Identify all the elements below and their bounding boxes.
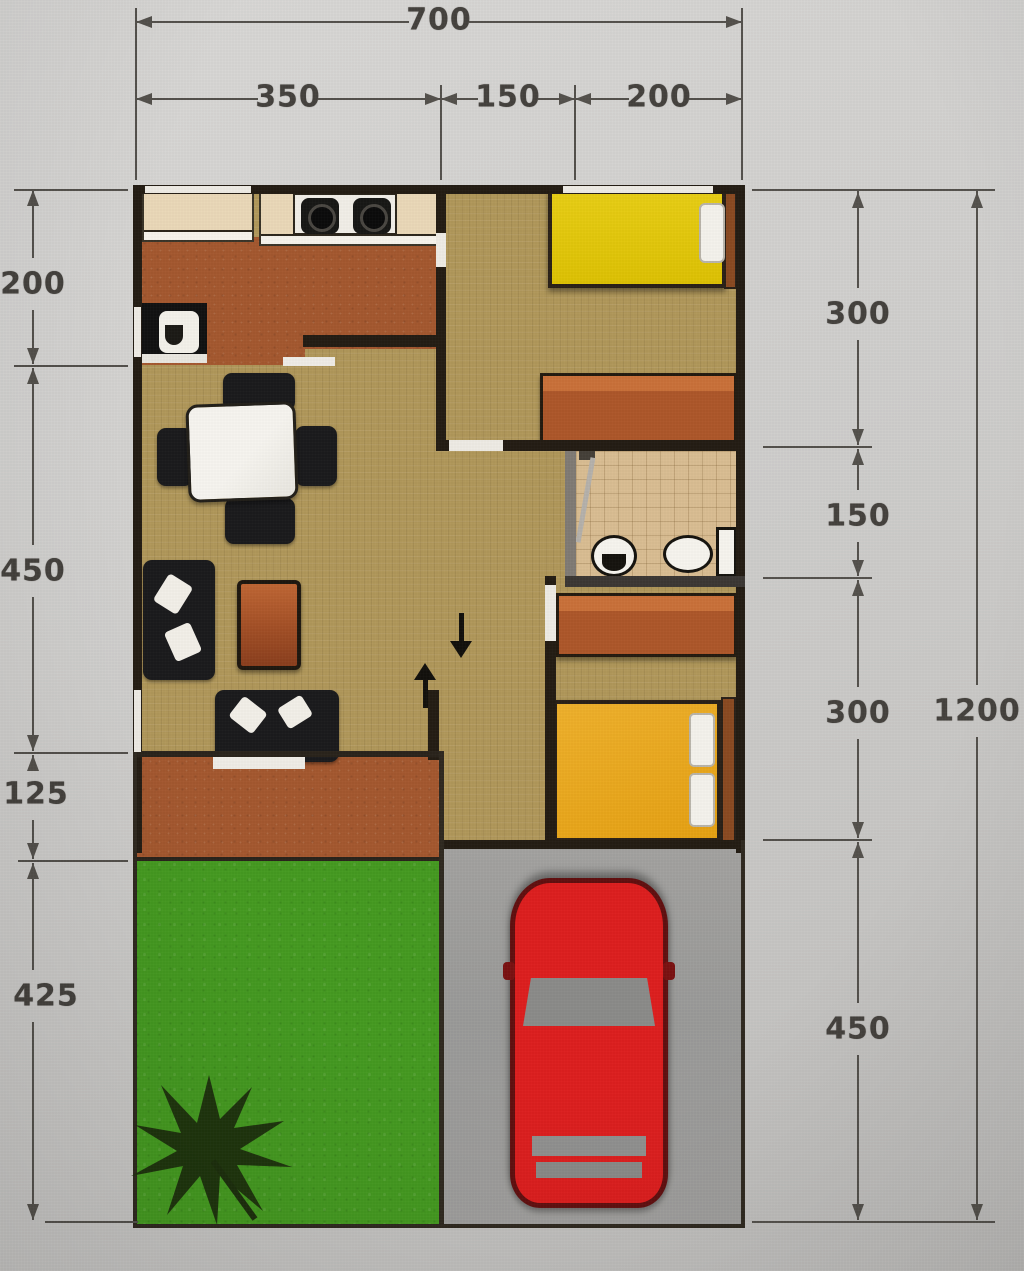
dim-left-seg-2: 450 [0,554,66,589]
car-windshield [523,978,655,1026]
stove [293,193,397,235]
sofa-cushion [228,696,268,735]
door-bedroom1 [436,233,446,267]
car [510,878,668,1208]
dim-left-seg-1: 200 [0,267,66,302]
car-mirror-right [663,962,675,980]
lot-right-edge [741,840,745,1228]
window-living [134,690,141,752]
lawn-driveway-divider [439,751,444,1228]
dim-width-seg-1: 350 [255,80,321,115]
wall-outer-bottom [439,840,745,849]
sofa-cushion [164,622,203,663]
dim-width-total: 700 [406,3,472,38]
sofa-cushion [277,694,313,729]
dim-left-seg-3: 125 [3,777,69,812]
dining-chair-bottom [225,498,295,544]
sofa-cushion [153,573,194,615]
car-mirror-left [503,962,515,980]
counter-edge [261,234,437,244]
porch-door-mat [213,755,305,769]
bed2-headboard [721,697,736,845]
dining-table [185,401,298,503]
toilet-bowl [663,535,713,573]
faucet-icon [165,325,183,345]
sink-edge [133,354,207,363]
car-rear-window [532,1136,646,1156]
window-kitchen [145,186,251,193]
porch-top-edge [133,751,443,757]
floor-plan-photo: 700 350 150 200 200 450 125 425 300 150 … [0,0,1024,1271]
kitchen-counter-left [142,190,254,242]
tree-icon [121,1073,297,1227]
wardrobe-top [543,376,734,391]
bed1-pillow [699,203,725,263]
wall-outer-right [736,185,745,853]
porch-bottom-edge [133,857,443,861]
side-table [237,580,301,670]
window-sink [134,307,141,357]
washbasin [591,535,637,577]
dim-right-seg-3: 300 [825,696,891,731]
counter-edge [144,230,252,240]
wall-hallway-west [428,690,439,760]
dim-right-seg-4: 450 [825,1012,891,1047]
dim-height-total: 1200 [933,694,1021,729]
wall-bedroom1-left [436,185,446,450]
wall-kitchen-partition [303,335,445,347]
door-bedroom2 [545,585,556,641]
bed2-pillow [689,773,715,827]
kitchen-sink-unit [133,303,207,363]
car-body [510,878,668,1208]
wall-bathroom-bottom [565,576,745,587]
car-rear-window [536,1162,642,1178]
stove-burner-icon [301,198,339,234]
bedroom2-wardrobe [556,593,737,657]
dim-right-seg-1: 300 [825,297,891,332]
dim-right-seg-2: 150 [825,499,891,534]
floor-plan [133,185,745,1228]
kitchen-threshold [283,357,335,366]
porch-floor [137,757,439,859]
dining-chair-right [295,426,337,486]
toilet-tank [716,527,737,577]
wall-bathroom-left [565,451,576,576]
dim-width-seg-2: 150 [475,80,541,115]
dim-left-seg-4: 425 [13,979,79,1014]
bedroom1-wardrobe [540,373,737,443]
dim-width-seg-3: 200 [626,80,692,115]
sofa-vertical [143,560,215,680]
bed2-pillow [689,713,715,767]
door-bedroom1-south [449,440,503,451]
sink-bowl [159,311,199,353]
stove-burner-icon [353,198,391,234]
window-bedroom1 [563,186,713,193]
washbasin-drain-icon [602,554,626,571]
wardrobe-top [559,596,734,611]
